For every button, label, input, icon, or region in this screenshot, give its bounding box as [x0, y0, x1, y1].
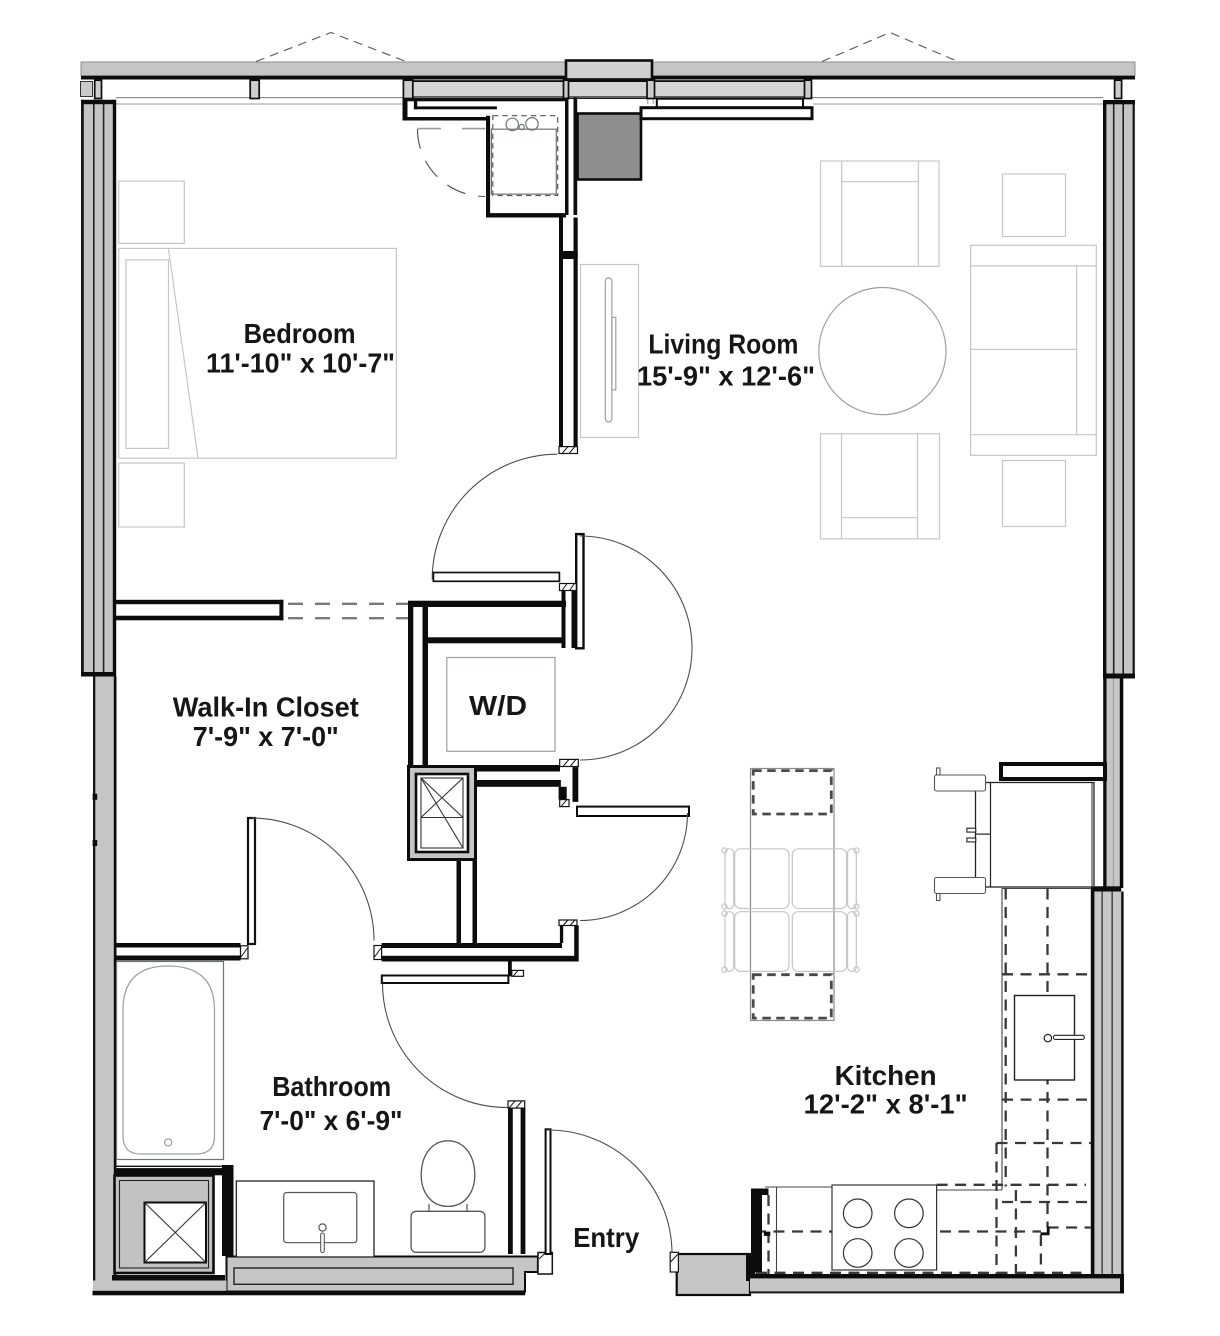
- svg-text:Entry: Entry: [573, 1222, 640, 1253]
- svg-text:7'-9" x 7'-0": 7'-9" x 7'-0": [193, 721, 339, 752]
- svg-text:Living Room: Living Room: [648, 329, 798, 360]
- svg-text:11'-10" x 10'-7": 11'-10" x 10'-7": [206, 347, 395, 378]
- svg-text:Kitchen: Kitchen: [835, 1060, 937, 1091]
- svg-text:Bedroom: Bedroom: [244, 318, 356, 349]
- svg-text:15'-9" x 12'-6": 15'-9" x 12'-6": [637, 360, 815, 391]
- svg-text:Bathroom: Bathroom: [272, 1071, 391, 1102]
- svg-text:12'-2" x 8'-1": 12'-2" x 8'-1": [804, 1088, 968, 1119]
- svg-text:7'-0" x 6'-9": 7'-0" x 6'-9": [260, 1105, 403, 1136]
- svg-text:W/D: W/D: [469, 690, 527, 721]
- svg-text:Walk-In Closet: Walk-In Closet: [173, 692, 359, 723]
